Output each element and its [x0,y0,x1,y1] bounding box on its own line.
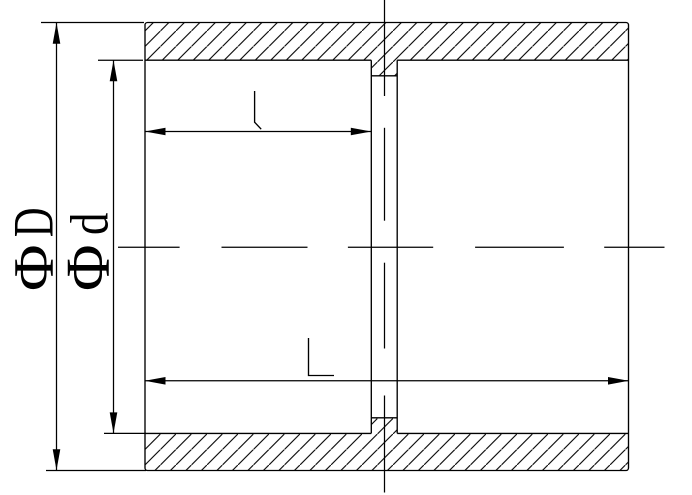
svg-text:Φ: Φ [53,245,123,292]
svg-text:d: d [59,212,119,235]
svg-text:D: D [2,207,65,237]
